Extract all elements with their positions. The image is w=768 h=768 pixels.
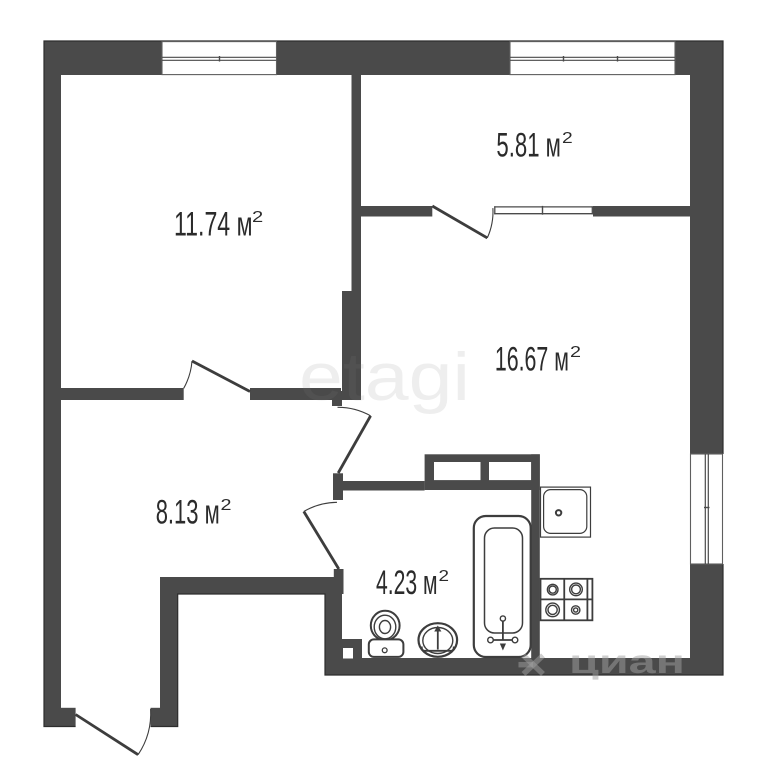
svg-text:2: 2 xyxy=(439,568,450,585)
svg-text:11.74 м: 11.74 м xyxy=(174,205,253,243)
svg-text:5.81 м: 5.81 м xyxy=(496,127,561,165)
svg-text:4.23 м: 4.23 м xyxy=(376,564,438,602)
svg-text:2: 2 xyxy=(221,497,232,514)
svg-text:2: 2 xyxy=(252,209,263,226)
svg-text:2: 2 xyxy=(570,344,581,361)
svg-text:etagi: etagi xyxy=(299,339,470,415)
svg-text:2: 2 xyxy=(562,130,573,147)
svg-text:циан: циан xyxy=(569,643,685,680)
svg-text:16.67 м: 16.67 м xyxy=(495,340,569,378)
svg-text:8.13 м: 8.13 м xyxy=(156,494,220,532)
